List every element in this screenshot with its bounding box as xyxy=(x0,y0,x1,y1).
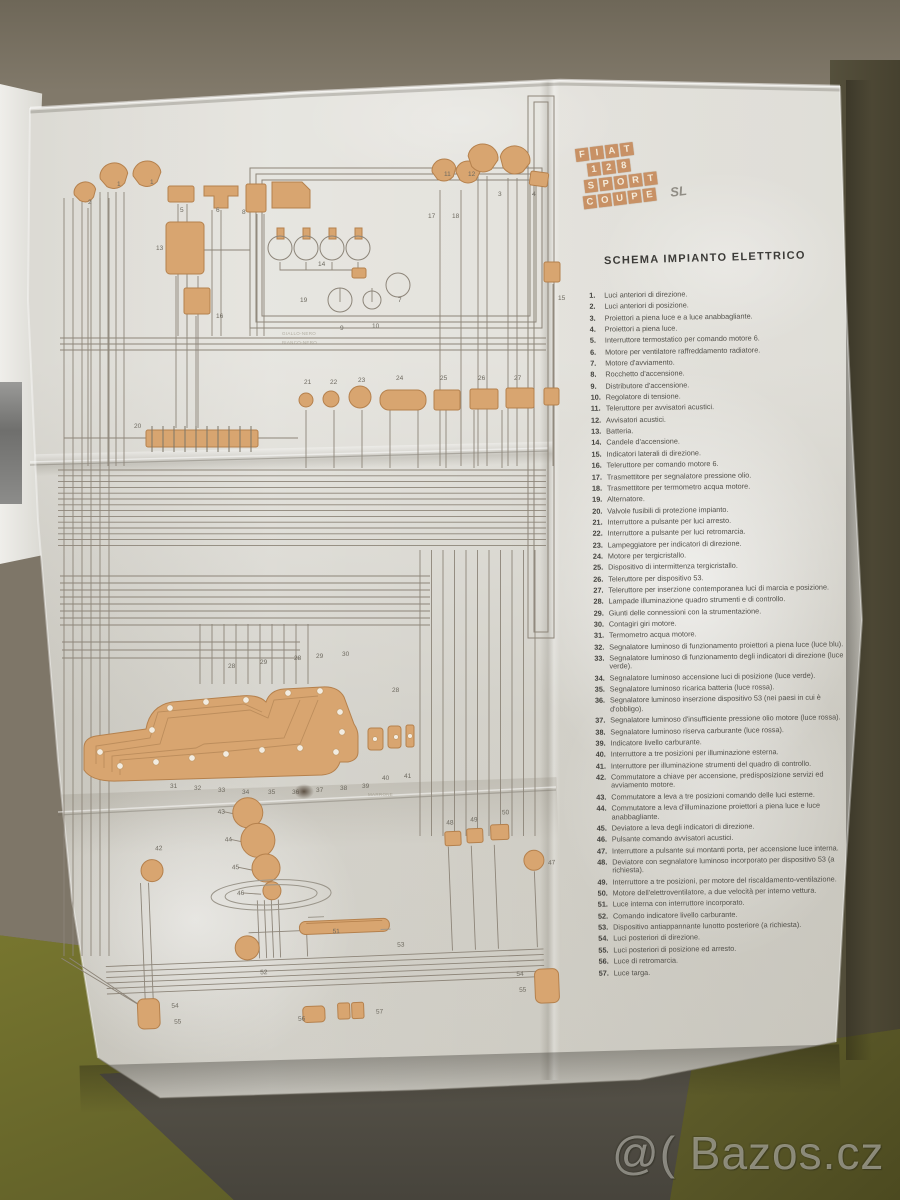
legend-item: 25.Dispositivo di intermittenza tergicri… xyxy=(593,560,845,572)
legend-item-number: 40. xyxy=(596,751,606,760)
legend-item: 6.Motore per ventilatore raffreddamento … xyxy=(590,345,842,357)
legend-item-text: Luci posteriori di direzione. xyxy=(613,933,700,943)
legend-item: 16.Teleruttore per comando motore 6. xyxy=(592,458,844,470)
legend-item: 48.Deviatore con segnalatore luminoso in… xyxy=(597,855,849,875)
legend-item-number: 29. xyxy=(594,609,604,618)
legend-item-number: 27. xyxy=(593,587,603,596)
photo-scene: 424344454647484950515253545556575455 112… xyxy=(0,0,900,1200)
legend-item-number: 38. xyxy=(595,728,605,737)
legend-item: 20.Valvole fusibili di protezione impian… xyxy=(592,504,844,516)
legend-item-text: Commutatore a chiave per accensione, pre… xyxy=(611,770,824,790)
legend-item: 27.Teleruttore per inserzione contempora… xyxy=(593,583,845,595)
legend-item-text: Segnalatore luminoso d'insufficiente pre… xyxy=(610,713,841,725)
legend-item: 30.Contagiri giri motore. xyxy=(594,617,846,629)
legend-item-text: Proiettori a piena luce. xyxy=(605,324,678,334)
legend-item: 15.Indicatori laterali di direzione. xyxy=(591,447,843,459)
legend-item: 56.Luce di retromarcia. xyxy=(599,954,851,966)
book-photo-thumbnail xyxy=(0,382,22,504)
legend-item-text: Teleruttore per avvisatori acustici. xyxy=(606,402,714,413)
legend-item: 28.Lampade illuminazione quadro strument… xyxy=(593,595,845,607)
legend-item: 9.Distributore d'accensione. xyxy=(590,379,842,391)
legend-item: 12.Avvisatori acustici. xyxy=(591,413,843,425)
legend-item-text: Luci anteriori di posizione. xyxy=(604,301,688,311)
legend-item: 14.Candele d'accensione. xyxy=(591,436,843,448)
legend-item: 57.Luce targa. xyxy=(599,966,851,978)
legend-item-text: Segnalatore luminoso ricarica batteria (… xyxy=(610,682,775,693)
legend-item-number: 41. xyxy=(596,762,606,771)
logo-tile: C xyxy=(583,195,597,209)
legend-item: 34.Segnalatore luminoso accensione luci … xyxy=(595,671,847,683)
legend-item-text: Segnalatore luminoso accensione luci di … xyxy=(610,670,816,682)
legend-item-number: 28. xyxy=(593,598,603,607)
legend-item: 21.Interruttore a pulsante per luci arre… xyxy=(592,515,844,527)
legend-item-number: 14. xyxy=(591,439,601,448)
legend-item-text: Dispositivo antiappannante lunotto poste… xyxy=(613,920,801,932)
legend-item-number: 44. xyxy=(596,805,606,814)
legend-item-number: 7. xyxy=(590,360,596,369)
legend-item-number: 3. xyxy=(590,314,596,323)
legend-item: 18.Trasmettitore per termometro acqua mo… xyxy=(592,481,844,493)
legend-item-number: 52. xyxy=(598,912,608,921)
legend-item-number: 26. xyxy=(593,575,603,584)
legend-item-text: Lampeggiatore per indicatori di direzion… xyxy=(608,538,742,549)
legend-item: 44.Commutatore a leva d'illuminazione pr… xyxy=(596,801,848,821)
legend-item-text: Deviatore a leva degli indicatori di dir… xyxy=(612,821,755,832)
legend-item-number: 54. xyxy=(598,935,608,944)
legend-item-number: 45. xyxy=(597,825,607,834)
legend-item-text: Segnalatore luminoso di funzionamento pr… xyxy=(609,639,843,651)
paper-stain xyxy=(294,784,314,799)
legend-item-number: 23. xyxy=(593,541,603,550)
legend-item: 52.Comando indicatore livello carburante… xyxy=(598,909,850,921)
legend-item: 33.Segnalatore luminoso di funzionamento… xyxy=(594,651,846,671)
legend-item-number: 47. xyxy=(597,847,607,856)
legend-item-number: 39. xyxy=(595,740,605,749)
legend-item-number: 24. xyxy=(593,553,603,562)
legend-item-text: Comando indicatore livello carburante. xyxy=(613,910,738,921)
legend-item-text: Teleruttore per comando motore 6. xyxy=(607,459,719,470)
legend-item-number: 33. xyxy=(594,655,604,664)
legend-item: 38.Segnalatore luminoso riserva carburan… xyxy=(595,725,847,737)
legend-item-text: Indicatore livello carburante. xyxy=(610,737,701,747)
legend-item-text: Pulsante comando avvisatori acustici. xyxy=(612,833,734,844)
legend-item: 1.Luci anteriori di direzione. xyxy=(589,288,841,300)
legend-item: 8.Rocchetto d'accensione. xyxy=(590,368,842,380)
legend-item: 36.Segnalatore luminoso inserzione dispo… xyxy=(595,694,847,714)
legend-item-text: Motore dell'elettroventilatore, a due ve… xyxy=(613,886,817,898)
legend-item-text: Giunti delle connessioni con la strument… xyxy=(609,606,762,617)
legend-item-text: Alternatore. xyxy=(607,494,645,504)
legend-item-number: 10. xyxy=(591,394,601,403)
legend-item-number: 1. xyxy=(589,292,595,301)
logo-tile: E xyxy=(642,188,656,202)
legend-item-number: 34. xyxy=(595,674,605,683)
legend-item-text: Interruttore per illuminazione strumenti… xyxy=(611,758,811,770)
legend-item-number: 31. xyxy=(594,632,604,641)
legend-item: 11.Teleruttore per avvisatori acustici. xyxy=(591,402,843,414)
legend-item-text: Dispositivo di intermittenza tergicrista… xyxy=(608,561,738,572)
legend-item-number: 35. xyxy=(595,686,605,695)
legend-item-number: 5. xyxy=(590,337,596,346)
legend-item-number: 15. xyxy=(591,450,601,459)
legend-item-text: Luci posteriori di posizione ed arresto. xyxy=(613,944,736,955)
logo-tile: P xyxy=(627,189,641,203)
legend-item-number: 16. xyxy=(592,462,602,471)
legend-item-number: 57. xyxy=(599,969,609,978)
legend-item-number: 51. xyxy=(598,901,608,910)
legend-item-number: 36. xyxy=(595,697,605,706)
legend-item: 7.Motore d'avviamento. xyxy=(590,356,842,368)
legend-item: 10.Regolatore di tensione. xyxy=(591,390,843,402)
legend-item-number: 56. xyxy=(599,958,609,967)
legend-item-number: 43. xyxy=(596,793,606,802)
legend-item-text: Termometro acqua motore. xyxy=(609,630,697,640)
legend-item-text: Luce di retromarcia. xyxy=(613,956,678,966)
fiat-128-sport-coupe-logo: FIAT128SPORTCOUPE SL xyxy=(574,135,661,208)
legend-item-number: 46. xyxy=(597,836,607,845)
legend-item-text: Motore per tergicristallo. xyxy=(608,550,686,560)
legend-item-number: 53. xyxy=(598,924,608,933)
legend-item-text: Commutatore a leva a tre posizioni coman… xyxy=(611,789,815,801)
legend-item-text: Batteria. xyxy=(606,426,633,435)
logo-tile: U xyxy=(612,191,626,205)
legend-item-text: Interruttore a tre posizioni, per motore… xyxy=(612,874,836,886)
legend-item-text: Luci anteriori di direzione. xyxy=(604,289,687,299)
legend-item: 2.Luci anteriori di posizione. xyxy=(589,300,841,312)
legend-item-text: Regolatore di tensione. xyxy=(606,392,681,402)
legend-item: 19.Alternatore. xyxy=(592,492,844,504)
legend-item-text: Luce targa. xyxy=(614,968,651,978)
legend-item: 37.Segnalatore luminoso d'insufficiente … xyxy=(595,714,847,726)
legend-item-number: 11. xyxy=(591,405,601,414)
legend-item-number: 9. xyxy=(590,382,596,391)
legend-item-number: 55. xyxy=(598,946,608,955)
legend-item: 23.Lampeggiatore per indicatori di direz… xyxy=(593,538,845,550)
legend-item-text: Indicatori laterali di direzione. xyxy=(606,448,701,458)
legend-item: 39.Indicatore livello carburante. xyxy=(595,736,847,748)
legend-item: 5.Interruttore termostatico per comando … xyxy=(590,334,842,346)
legend-item-number: 48. xyxy=(597,859,607,868)
legend-item-number: 8. xyxy=(590,371,596,380)
legend-item-number: 25. xyxy=(593,564,603,573)
legend-item-text: Interruttore a pulsante sui montanti por… xyxy=(612,843,839,855)
legend-item-number: 4. xyxy=(590,326,596,335)
legend-item-number: 22. xyxy=(593,530,603,539)
legend-item: 42.Commutatore a chiave per accensione, … xyxy=(596,770,848,790)
legend-item-number: 42. xyxy=(596,774,606,783)
legend-item-text: Segnalatore luminoso inserzione disposit… xyxy=(610,693,821,713)
legend-item-number: 37. xyxy=(595,717,605,726)
legend-item-number: 17. xyxy=(592,473,602,482)
legend-item-text: Deviatore con segnalatore luminoso incor… xyxy=(612,854,834,875)
legend-item: 3.Proiettori a piena luce e a luce anabb… xyxy=(590,311,842,323)
legend-item: 13.Batteria. xyxy=(591,424,843,436)
legend-item-text: Luce interna con interruttore incorporat… xyxy=(613,898,745,909)
legend-item-text: Segnalatore luminoso di funzionamento de… xyxy=(609,650,843,671)
legend-panel: 1.Luci anteriori di direzione.2.Luci ant… xyxy=(589,288,851,980)
legend-item: 50.Motore dell'elettroventilatore, a due… xyxy=(598,886,850,898)
legend-item-text: Distributore d'accensione. xyxy=(605,380,689,390)
legend-item: 54.Luci posteriori di direzione. xyxy=(598,932,850,944)
legend-item-text: Trasmettitore per termometro acqua motor… xyxy=(607,481,750,492)
legend-item-text: Valvole fusibili di protezione impianto. xyxy=(607,504,728,515)
legend-item: 24.Motore per tergicristallo. xyxy=(593,549,845,561)
bazos-watermark: @( Bazos.cz xyxy=(612,1126,884,1180)
legend-item-number: 32. xyxy=(594,643,604,652)
legend-item-number: 49. xyxy=(597,878,607,887)
legend-item-text: Teleruttore per inserzione contemporanea… xyxy=(608,582,829,594)
legend-item: 45.Deviatore a leva degli indicatori di … xyxy=(597,821,849,833)
legend-item-text: Proiettori a piena luce e a luce anabbag… xyxy=(605,311,753,322)
legend-item-text: Trasmettitore per segnalatore pressione … xyxy=(607,470,752,481)
legend-item-number: 12. xyxy=(591,416,601,425)
legend-item-number: 30. xyxy=(594,621,604,630)
legend-item-number: 20. xyxy=(592,507,602,516)
legend-item-text: Motore per ventilatore raffreddamento ra… xyxy=(605,345,760,356)
legend-item: 17.Trasmettitore per segnalatore pressio… xyxy=(592,470,844,482)
horizontal-fold-crease xyxy=(28,442,553,477)
legend-item: 22.Interruttore a pulsante per luci retr… xyxy=(593,526,845,538)
legend-item-number: 21. xyxy=(592,519,602,528)
logo-tile: O xyxy=(598,193,612,207)
legend-item-number: 18. xyxy=(592,484,602,493)
legend-item-text: Interruttore a tre posizioni per illumin… xyxy=(611,748,779,759)
legend-item-text: Interruttore a pulsante per luci arresto… xyxy=(607,516,731,527)
legend-item: 29.Giunti delle connessioni con la strum… xyxy=(594,606,846,618)
legend-item-text: Teleruttore per dispositivo 53. xyxy=(608,573,703,583)
legend-item: 4.Proiettori a piena luce. xyxy=(590,322,842,334)
legend-item: 51.Luce interna con interruttore incorpo… xyxy=(598,898,850,910)
legend-item: 53.Dispositivo antiappannante lunotto po… xyxy=(598,920,850,932)
logo-suffix: SL xyxy=(669,183,687,200)
legend-item-number: 6. xyxy=(590,348,596,357)
legend-item-number: 2. xyxy=(589,303,595,312)
legend-list: 1.Luci anteriori di direzione.2.Luci ant… xyxy=(589,288,851,977)
legend-item-text: Avvisatori acustici. xyxy=(606,415,666,425)
legend-item-text: Candele d'accensione. xyxy=(606,437,680,447)
legend-item-text: Segnalatore luminoso riserva carburante … xyxy=(610,725,784,736)
legend-item-text: Interruttore a pulsante per luci retroma… xyxy=(608,527,746,538)
legend-item-text: Commutatore a leva d'illuminazione proie… xyxy=(611,801,820,821)
legend-item-number: 50. xyxy=(598,890,608,899)
legend-item-text: Interruttore termostatico per comando mo… xyxy=(605,334,760,345)
legend-item-text: Motore d'avviamento. xyxy=(605,358,675,368)
legend-item-number: 19. xyxy=(592,496,602,505)
legend-item: 55.Luci posteriori di posizione ed arres… xyxy=(598,943,850,955)
legend-item-text: Rocchetto d'accensione. xyxy=(605,369,684,379)
legend-item-text: Contagiri giri motore. xyxy=(609,619,677,629)
legend-item-number: 13. xyxy=(591,428,601,437)
legend-item-text: Lampade illuminazione quadro strumenti e… xyxy=(608,594,785,605)
